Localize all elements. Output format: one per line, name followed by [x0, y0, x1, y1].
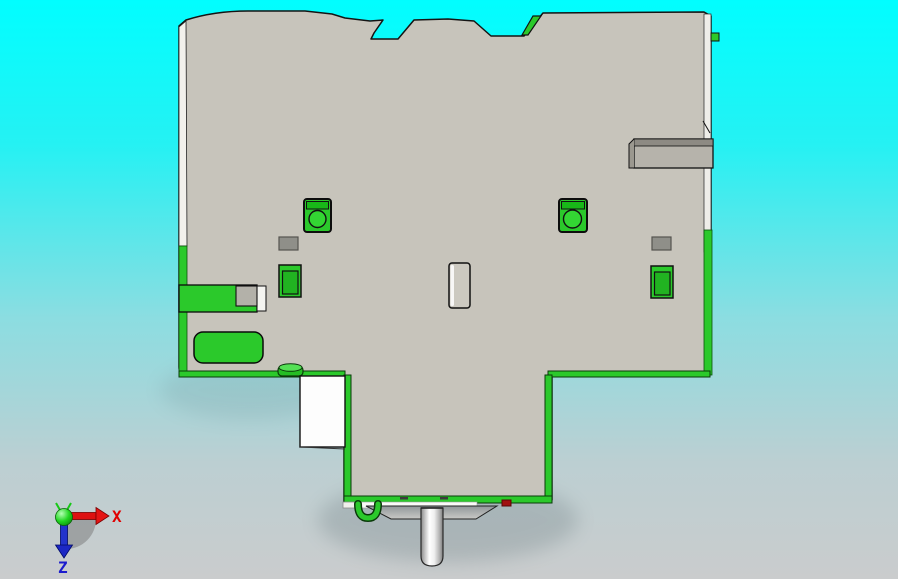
gray-pad-right[interactable] [652, 237, 671, 250]
green-rounded-pad[interactable] [194, 332, 263, 363]
green-socket-right[interactable] [651, 266, 673, 298]
green-block-right-circle [564, 210, 582, 228]
left-edge-white-strip [179, 21, 187, 246]
center-slot[interactable] [449, 263, 470, 308]
cad-canvas[interactable]: X Z [0, 0, 898, 579]
green-bar-end-cap [257, 286, 266, 311]
green-block-left[interactable] [304, 199, 331, 232]
green-block-right[interactable] [559, 199, 587, 232]
right-lobe-bottom-band [548, 371, 710, 377]
foot-tick-1 [400, 497, 408, 500]
right-edge-green-tab [711, 33, 719, 41]
x-axis-label: X [112, 507, 122, 526]
bottom-pin[interactable] [421, 508, 443, 566]
green-socket-left[interactable] [279, 265, 301, 297]
green-knob[interactable] [278, 364, 303, 376]
red-marker[interactable] [502, 500, 511, 506]
right-edge-green-strip [704, 230, 712, 375]
gray-pad-left[interactable] [279, 237, 298, 250]
mounting-clip[interactable] [629, 139, 713, 168]
green-block-left-circle [309, 211, 326, 228]
cad-viewport[interactable]: X Z [0, 0, 898, 579]
z-axis-label: Z [58, 558, 68, 577]
foot-tick-2 [440, 497, 448, 500]
white-box[interactable] [300, 376, 345, 449]
neck-right-band [545, 375, 552, 502]
green-bar-notch [236, 286, 257, 306]
green-bar[interactable] [179, 285, 266, 312]
